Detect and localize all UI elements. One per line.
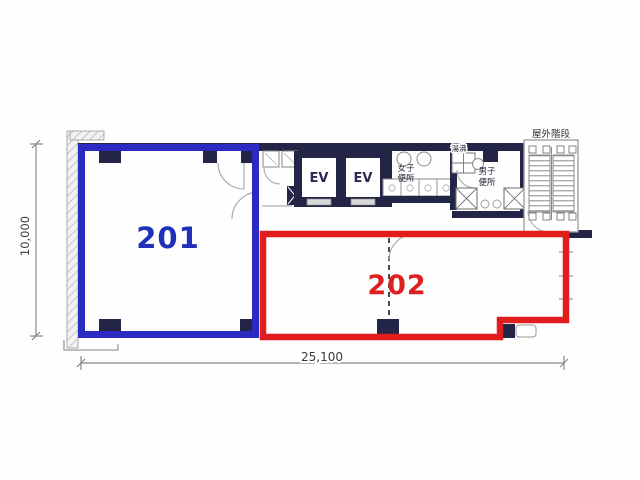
door-jamb: [203, 150, 217, 163]
notch-fixture: [516, 325, 536, 337]
top-left-wall-stub: [70, 131, 104, 140]
wall-band: [452, 211, 527, 218]
urinal: [481, 200, 489, 208]
elevator-2-door: [351, 199, 375, 205]
door-arc: [264, 168, 280, 184]
outdoor-staircase: 屋外階段: [524, 128, 578, 232]
womens-toilet-label-line2: 便所: [397, 173, 415, 184]
wall-band: [380, 196, 456, 203]
elevator-1-door: [307, 199, 331, 205]
womens-toilet-label-line1: 女子: [397, 163, 415, 174]
mens-toilet-label-line1: 男子: [478, 167, 496, 177]
vertical-dimension-value: 10,000: [18, 216, 32, 256]
stair-flight-right: [553, 155, 574, 212]
room-201-number: 201: [136, 221, 200, 255]
pillar: [99, 319, 121, 333]
stall-x-left: [456, 188, 477, 209]
hot-water-label: 湯沸: [452, 143, 467, 153]
stall-x-right: [504, 188, 525, 209]
outdoor-stairs-label: 屋外階段: [532, 128, 571, 140]
urinal: [493, 200, 501, 208]
floor-plan-drawing: EV EV 女子 便所: [0, 0, 640, 480]
door-arc: [218, 163, 244, 189]
room-202-number: 202: [367, 270, 426, 301]
elevator-1-label: EV: [310, 171, 329, 186]
pillar: [377, 319, 399, 334]
mens-toilet-label-line2: 便所: [478, 177, 496, 188]
floor-plan-page: EV EV 女子 便所: [0, 0, 640, 480]
horizontal-dimension-value: 25,100: [301, 350, 343, 364]
elevator-bank: EV EV: [294, 151, 392, 207]
pillar: [99, 150, 121, 163]
wash-basin: [417, 152, 431, 166]
duct-shaft: [483, 148, 498, 162]
elevator-2-label: EV: [354, 171, 373, 186]
door-arc: [389, 234, 415, 260]
stair-flight-left: [529, 155, 550, 212]
left-exterior-wall-hatch: [67, 131, 78, 348]
mens-toilet-room: 湯沸 男子 便所: [452, 143, 528, 218]
